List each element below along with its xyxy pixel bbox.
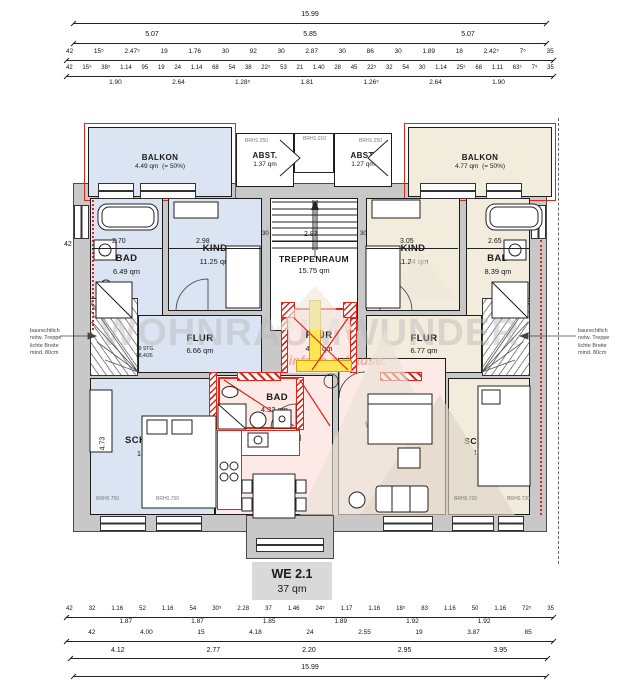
brh-label: BRH0.720: [454, 497, 477, 502]
dim-value: 1.90: [492, 80, 505, 87]
dim-value: 30: [262, 231, 269, 237]
room-area: 18.85 qm: [137, 450, 168, 458]
room-label: WO./SCHL.: [365, 421, 419, 431]
dim-value: 1.90: [109, 80, 122, 87]
dim-value: 42: [64, 241, 72, 248]
dim-value: 2.28: [237, 606, 249, 612]
dim-value: 54: [402, 65, 409, 71]
dim-value: 1.87: [191, 619, 204, 626]
new-wall-lintel: [380, 372, 422, 381]
room-area: 1.37 qm: [253, 162, 277, 169]
dim-value: 4.00: [140, 630, 153, 637]
bay-window-glass: [256, 538, 324, 552]
room-label: SCHLAFEN: [464, 437, 513, 446]
dim-value: 35: [547, 65, 554, 71]
dim-row-bottom-3: 4.122.772.202.953.95: [70, 647, 548, 654]
new-wall: [209, 372, 217, 430]
dim-value: 35: [547, 606, 554, 612]
room-bad-mid: BAD 4.32 qm: [218, 377, 298, 429]
dim-value: 28: [334, 65, 341, 71]
dim-value: 1.92: [406, 619, 419, 626]
dim-value: 19: [158, 65, 165, 71]
room-area: 12.06 qm: [376, 435, 407, 443]
dim-value: 3.05: [400, 238, 414, 245]
room-area: 4.77 qm (= 50%): [455, 164, 505, 171]
dim-value: 24⁵: [316, 606, 325, 612]
new-wall: [281, 318, 288, 373]
room-area: 18.39 qm: [473, 449, 504, 457]
dim-line: [92, 248, 163, 249]
dim-line: [73, 23, 547, 24]
unit-label-box: WE 2.1 37 qm: [252, 562, 332, 600]
unit-name: WE 2.1: [272, 567, 313, 581]
dim-value: 1.92: [478, 619, 491, 626]
dim-row-bottom-total: 15.99: [73, 664, 547, 671]
dim-value: 1.17: [341, 606, 353, 612]
room-area: 4.49 qm (= 50%): [135, 164, 185, 171]
dim-value: 22⁵: [261, 65, 270, 71]
dim-value: 35: [547, 49, 554, 56]
dim-value: 30: [339, 49, 346, 56]
balcony-door-right: [420, 183, 476, 199]
window: [531, 205, 546, 239]
red-dotted-line-right: [540, 240, 542, 515]
dim-value: 24: [306, 630, 313, 637]
dim-value: 1.16: [494, 606, 506, 612]
dim-value: 42: [66, 49, 73, 56]
window: [98, 183, 134, 199]
dim-value: 18⁵: [396, 606, 405, 612]
stair-spec-note: 19 STG.18,4/26: [136, 346, 155, 359]
dim-value: 63⁵: [513, 65, 522, 71]
room-area: 8.39 qm: [484, 268, 511, 276]
dim-value: 25⁵: [457, 65, 466, 71]
dim-line: [66, 60, 554, 61]
new-wall-pier: [281, 302, 295, 318]
dim-value: 15: [197, 630, 204, 637]
dim-value: 30: [360, 231, 367, 237]
dim-value: 2.87: [304, 231, 318, 238]
dim-value: 15.99: [301, 664, 319, 671]
window: [452, 516, 494, 531]
dim-value: 2.55: [358, 630, 371, 637]
brh-label: BRH0.750: [96, 497, 119, 502]
dim-value: 1.85: [263, 619, 276, 626]
dim-line: [366, 248, 458, 249]
room-wo-schl: WO./SCHL. 12.06 qm: [338, 358, 446, 515]
dim-row-bottom-1: 42321.16521.165430⁵2.28371.4624⁵1.171.16…: [66, 606, 554, 612]
dim-value: 52: [139, 606, 146, 612]
new-wall-pier: [343, 302, 357, 318]
dim-value: 15⁵: [82, 65, 91, 71]
dim-row-bottom-1b: 1.871.871.851.891.921.92: [90, 619, 520, 626]
dim-value: 2.87: [305, 49, 318, 56]
dim-line: [66, 76, 554, 77]
dim-line: [73, 43, 547, 44]
new-wall: [296, 377, 304, 430]
dim-row-bottom-2: 424.00154.18242.55193.8785: [66, 630, 554, 637]
note-line: mind. 80cm: [30, 350, 86, 357]
dim-value: 24: [174, 65, 181, 71]
dim-value: 32: [386, 65, 393, 71]
dim-value: 54: [228, 65, 235, 71]
dim-value: 30: [394, 49, 401, 56]
dim-line: [168, 248, 262, 249]
dim-value: 95: [142, 65, 149, 71]
dim-value: 1.14: [435, 65, 447, 71]
brh-label: BRH1.250: [359, 139, 382, 144]
dim-line: [272, 241, 358, 242]
room-label: BALKON: [462, 154, 499, 162]
dim-value: 2.20: [302, 647, 316, 654]
dim-value: 2.65: [488, 238, 502, 245]
dim-value: 86: [367, 49, 374, 56]
dim-row-top-thirds: 5.075.855.07: [73, 31, 547, 38]
dim-value: 30: [277, 49, 284, 56]
dim-value: 19: [161, 49, 168, 56]
dim-value: 1.14: [191, 65, 203, 71]
room-kind-right: KIND 11.24 qm: [366, 198, 460, 311]
dim-value: 1.26⁵: [364, 80, 379, 87]
dim-value: 1.81: [301, 80, 314, 87]
dim-value: 42: [66, 65, 73, 71]
dim-value: 92: [250, 49, 257, 56]
window: [156, 516, 202, 531]
dim-value: 1.40: [313, 65, 325, 71]
dim-value: 1.89: [422, 49, 435, 56]
window: [486, 183, 522, 199]
brh-label: BRH1.250: [245, 139, 268, 144]
note-line: lichte Breite: [578, 343, 618, 350]
bay-window: [246, 515, 334, 559]
balcony-door-left: [140, 183, 196, 199]
note-stair-right: baurechtlichnotw. Treppelichte Breitemin…: [578, 328, 618, 358]
dim-value: 1.16: [368, 606, 380, 612]
dim-value: 4.12: [111, 647, 125, 654]
dim-value: 53: [280, 65, 287, 71]
dim-value: 2.64: [172, 80, 185, 87]
dim-value: 21: [297, 65, 304, 71]
note-line: 19 STG.: [136, 346, 155, 353]
note-line: 18,4/26: [136, 353, 155, 360]
dim-row-top-total: 15.99: [73, 11, 547, 18]
note-line: baurechtlich: [578, 328, 618, 335]
dim-value: 1.89: [334, 619, 347, 626]
dim-line: [73, 676, 547, 677]
dim-value: 4.18: [249, 630, 262, 637]
note-line: mind. 80cm: [578, 350, 618, 357]
dim-line: [466, 248, 530, 249]
dim-value: 37: [265, 606, 272, 612]
note-line: baurechtlich: [30, 328, 86, 335]
dim-value: 2.42⁵: [484, 49, 499, 56]
red-dotted-line-left: [92, 200, 94, 330]
room-label: TREPPENRAUM: [279, 255, 349, 264]
note-line: lichte Breite: [30, 343, 86, 350]
dim-value: 42: [66, 606, 73, 612]
dim-value: 1.16: [111, 606, 123, 612]
dim-value: 30⁵: [212, 606, 221, 612]
note-line: notw. Treppe: [578, 335, 618, 342]
dim-value: 45: [351, 65, 358, 71]
dim-value: 1.16: [444, 606, 456, 612]
dim-line: [66, 641, 554, 642]
brh-label: BRH0.720: [507, 497, 530, 502]
dim-value: 2.77: [207, 647, 221, 654]
dim-value: 1.76: [188, 49, 201, 56]
dim-value-vertical: 4.73: [99, 437, 106, 451]
room-label: ABST.: [350, 152, 375, 160]
dim-value: 15⁵: [94, 49, 104, 56]
dim-value: 30: [222, 49, 229, 56]
dim-value: 1.46: [288, 606, 300, 612]
dim-value: 5.07: [145, 31, 159, 38]
dim-value: 19: [415, 630, 422, 637]
dim-value: 85: [524, 630, 531, 637]
dim-value: 2.64: [429, 80, 442, 87]
note-line: notw. Treppe: [30, 335, 86, 342]
brh-label: BRH0.750: [156, 497, 179, 502]
floor-plan-canvas: 15.99 5.075.855.07 4215⁵2.47⁵191.7630923…: [0, 0, 619, 688]
dim-value: 2.47⁵: [124, 49, 139, 56]
dim-value: 2.95: [398, 647, 412, 654]
dim-value: 54: [190, 606, 197, 612]
dim-row-top-5: 1.902.641.28⁵1.811.26⁵2.641.90: [84, 80, 530, 87]
room-schlafen-right: SCHLAFEN 18.39 qm: [448, 378, 530, 515]
room-label: BAD: [116, 254, 138, 264]
window: [100, 516, 146, 531]
dim-value: 30: [419, 65, 426, 71]
room-area: 6.49 qm: [113, 268, 140, 276]
room-area: 11.25 qm: [200, 258, 231, 266]
dim-value: 50: [472, 606, 479, 612]
dim-value: 68: [212, 65, 219, 71]
dim-value: 1.14: [120, 65, 132, 71]
dim-value: 5.07: [461, 31, 475, 38]
dim-value: 2.98: [196, 238, 210, 245]
dim-value: 3.87: [467, 630, 480, 637]
room-label: BALKON: [142, 154, 179, 162]
room-area: 11.24 qm: [398, 258, 429, 266]
dim-value: 3.95: [493, 647, 507, 654]
room-area: 1.27 qm: [351, 162, 375, 169]
brh-label: BRH1.010: [303, 137, 326, 142]
dim-value: 1.11: [492, 65, 503, 71]
room-label: BAD: [487, 254, 509, 264]
room-label: BAD: [266, 393, 288, 403]
dim-value: 5.85: [303, 31, 317, 38]
dim-value: 2.70: [112, 238, 126, 245]
highlight-wall-horizontal: [296, 360, 352, 372]
dim-value: 83: [421, 606, 428, 612]
section-dash-line: [558, 118, 559, 564]
room-schlafen-left: SCHLAFEN 18.85 qm: [90, 378, 215, 515]
dim-value: 1.28⁵: [235, 80, 250, 87]
dim-row-top-3: 4215⁵2.47⁵191.763092302.873086301.89182.…: [66, 49, 554, 56]
dim-row-top-4: 4215⁵38⁵1.149519241.1468543822⁵53211.402…: [66, 65, 554, 71]
unit-area: 37 qm: [277, 583, 306, 595]
dim-value: 38: [245, 65, 252, 71]
dim-value: 22⁵: [367, 65, 376, 71]
kitchen-counter: [240, 430, 300, 456]
room-kind-left: KIND 11.25 qm: [168, 198, 262, 311]
room-area: 4.32 qm: [261, 406, 288, 414]
dim-value: 7⁵: [520, 49, 526, 56]
room-label: ABST.: [252, 152, 277, 160]
note-stair-left: baurechtlichnotw. Treppelichte Breitemin…: [30, 328, 86, 358]
window: [383, 516, 433, 531]
window: [74, 205, 89, 239]
room-label: SCHLAFEN: [125, 436, 180, 446]
kitchen-counter: [217, 430, 242, 510]
window: [498, 516, 524, 531]
dim-value: 38⁵: [101, 65, 110, 71]
new-wall-lintel: [237, 372, 281, 381]
dim-value: 15.99: [301, 11, 319, 18]
dim-line: [70, 658, 548, 659]
dim-value: 68: [475, 65, 482, 71]
dim-value: 72⁵: [522, 606, 531, 612]
dim-value: 42: [88, 630, 95, 637]
dim-value: 32: [89, 606, 96, 612]
dim-value: 1.16: [162, 606, 174, 612]
dim-value: 18: [456, 49, 463, 56]
dim-value: 7⁵: [532, 65, 538, 71]
room-area: 15.75 qm: [298, 267, 329, 275]
dim-value: 1.87: [120, 619, 133, 626]
